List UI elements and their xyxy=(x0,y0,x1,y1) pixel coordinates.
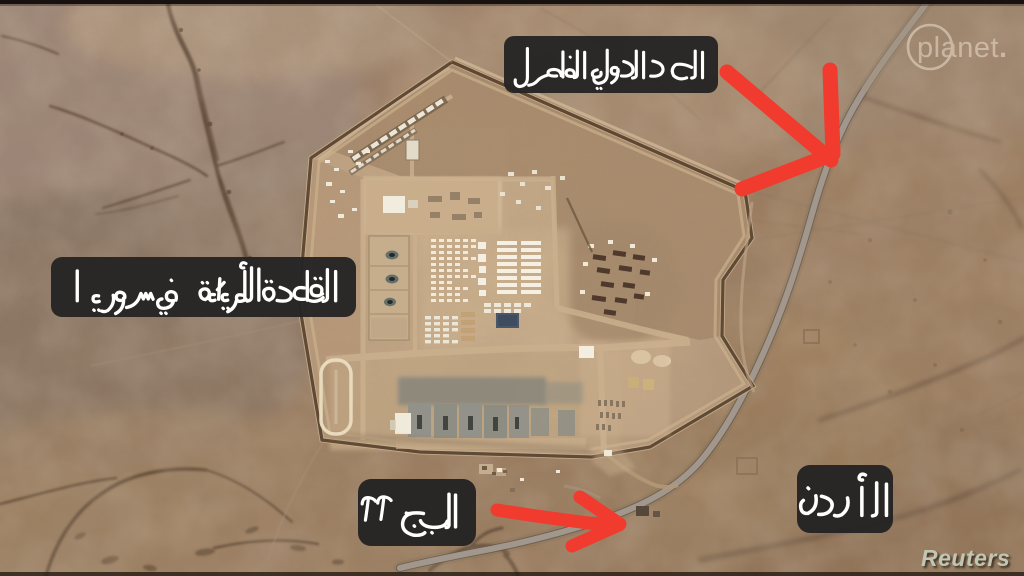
svg-text:Reuters: Reuters xyxy=(921,545,1010,571)
svg-text:planet.: planet. xyxy=(917,32,1008,64)
